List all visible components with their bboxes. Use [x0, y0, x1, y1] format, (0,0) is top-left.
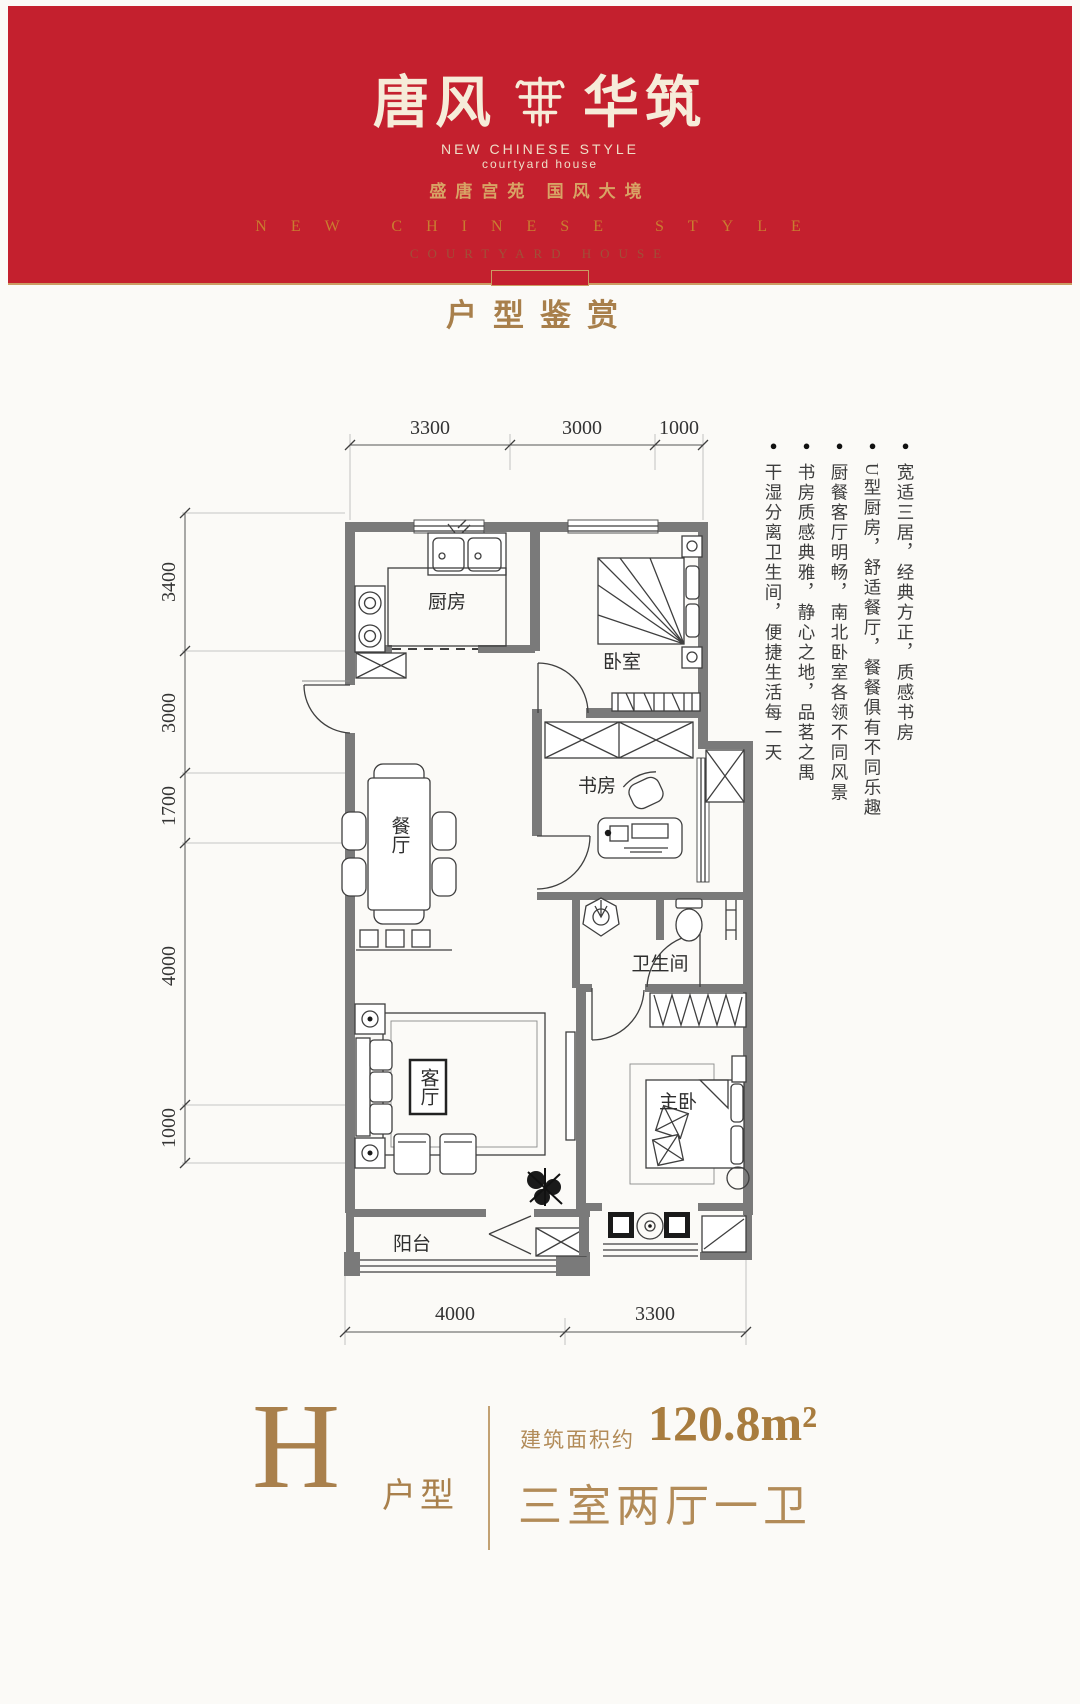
dim-top-3: 1000 [659, 417, 699, 439]
living-furniture [355, 930, 575, 1206]
logo-right-text: 华筑 [583, 58, 707, 139]
brand-slogan: 盛唐宫苑 国风大境 [8, 177, 1072, 202]
label-balcony: 阳台 [393, 1233, 431, 1255]
bullet-dot-icon: ● [832, 438, 847, 463]
style-line-en: NEW CHINESE STYLE [8, 218, 1072, 236]
label-kitchen: 厨房 [428, 591, 466, 613]
logo-subtitle-en2: courtyard house [8, 157, 1072, 171]
area-value: 120.8m² [648, 1394, 817, 1452]
unit-type-label: 户型 [382, 1468, 458, 1517]
dim-bottom-1: 4000 [435, 1303, 475, 1325]
feature-column: ●书房质感典雅，静心之地，品茗之禺 [790, 438, 822, 878]
style-line-en2: COURTYARD HOUSE [8, 246, 1072, 262]
gate-ornament-icon [511, 71, 569, 127]
feature-text: 宽适三居，经典方正，质感书房 [895, 463, 915, 743]
dim-left-5: 1000 [158, 1108, 180, 1148]
feature-column: ●宽适三居，经典方正，质感书房 [889, 438, 921, 878]
bullet-dot-icon: ● [898, 438, 913, 463]
feature-text: 厨餐客厅明畅，南北卧室各领不同风景 [829, 463, 849, 803]
bullet-dot-icon: ● [799, 438, 814, 463]
label-dining: 餐厅 [389, 816, 411, 854]
master-furniture [608, 993, 749, 1239]
area-prefix: 建筑面积约 [520, 1424, 635, 1454]
dim-left-4: 4000 [158, 946, 180, 986]
room-layout-text: 三室两厅一卫 [518, 1470, 812, 1534]
feature-column: ●U型厨房，舒适餐厅，餐餐俱有不同乐趣 [856, 438, 888, 878]
bullet-dot-icon: ● [865, 438, 880, 463]
dim-top-1: 3300 [410, 417, 450, 439]
brand-logo: 唐风 华筑 [8, 58, 1072, 139]
feature-column: ●干湿分离卫生间，便捷生活每一天 [757, 438, 789, 878]
bullet-dot-icon: ● [766, 438, 781, 463]
dim-top-2: 3000 [562, 417, 602, 439]
bedroom-furniture [598, 536, 702, 711]
label-bedroom: 卧室 [603, 651, 641, 673]
feature-text: U型厨房，舒适餐厅，餐餐俱有不同乐趣 [862, 463, 882, 818]
feature-text-block: ●宽适三居，经典方正，质感书房 ●U型厨房，舒适餐厅，餐餐俱有不同乐趣 ●厨餐客… [745, 438, 921, 878]
brand-banner: 唐风 华筑 NEW CHINESE STYLE courtyard house … [8, 6, 1072, 285]
unit-type-letter: H [252, 1386, 340, 1508]
dim-left-1: 3400 [158, 562, 180, 602]
logo-subtitle-en: NEW CHINESE STYLE [8, 141, 1072, 157]
label-bath: 卫生间 [631, 953, 688, 975]
balcony-fixtures [489, 1213, 586, 1256]
feature-text: 书房质感典雅，静心之地，品茗之禺 [796, 463, 816, 783]
label-master: 主卧 [659, 1091, 697, 1113]
dim-left-2: 3000 [158, 693, 180, 733]
dim-bottom-2: 3300 [635, 1303, 675, 1325]
banner-bottom-tab [491, 270, 589, 286]
dimension-bottom: 4000 3300 [340, 1303, 751, 1337]
page-title: 户型鉴赏 [0, 290, 1080, 335]
footer-divider [488, 1406, 490, 1550]
dimension-left: 3400 3000 1700 4000 1000 [158, 508, 190, 1168]
dim-left-3: 1700 [158, 786, 180, 826]
poster-page: 唐风 华筑 NEW CHINESE STYLE courtyard house … [0, 0, 1080, 1704]
feature-text: 干湿分离卫生间，便捷生活每一天 [763, 463, 783, 763]
label-living: 客厅 [418, 1068, 440, 1106]
feature-column: ●厨餐客厅明畅，南北卧室各领不同风景 [823, 438, 855, 878]
logo-left-text: 唐风 [373, 58, 497, 139]
study-furniture [545, 722, 693, 858]
dimension-top: 3300 3000 1000 [345, 417, 708, 450]
label-study: 书房 [578, 775, 616, 797]
